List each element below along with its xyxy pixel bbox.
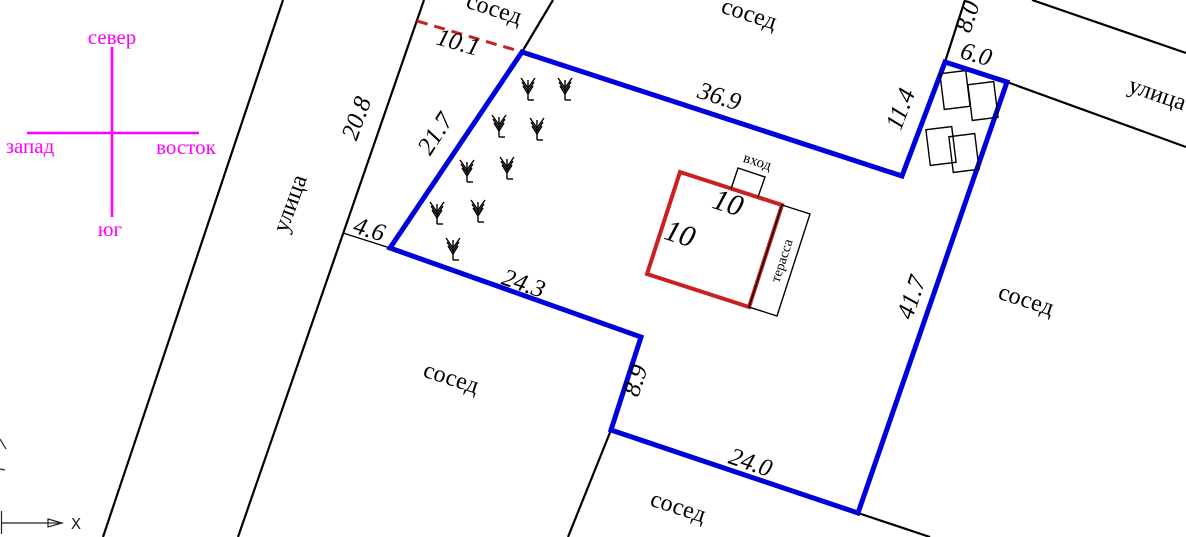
tree-icon	[471, 200, 485, 222]
neighbor-top-label: сосед	[718, 0, 780, 35]
street-lines	[103, 0, 1186, 537]
compass-south-label: юг	[98, 217, 123, 241]
trees	[430, 78, 572, 260]
dim-edge-step: 8.9	[618, 361, 653, 400]
neighbor-south-label: сосед	[647, 486, 709, 528]
compass-east-label: восток	[156, 135, 217, 159]
street-right-north-line	[1032, 0, 1186, 53]
neighbor-divider-top-line	[522, 0, 553, 52]
dim-street-frontage: 20.8	[337, 93, 378, 144]
dim-edge-s: 24.0	[725, 443, 776, 483]
ucs-axis-icon: X	[0, 439, 81, 534]
compass-north-label: север	[88, 25, 137, 49]
tree-icon	[430, 202, 444, 224]
dim-edge-ne: 11.4	[881, 85, 921, 134]
street-left-label: улица	[268, 171, 313, 236]
ucs-y-tick-small	[0, 469, 5, 470]
dim-edge-sw: 24.3	[498, 264, 548, 304]
neighbor-boundary-southwest-line	[568, 430, 611, 537]
dim-dashed-gap: 10.1	[433, 24, 482, 62]
tree-icon	[460, 160, 474, 182]
street-left-west-line	[103, 0, 283, 537]
tree-icon	[446, 238, 460, 260]
street-right-label: улица	[1125, 72, 1186, 116]
neighbor-boundary-southeast-line	[858, 513, 930, 537]
tree-icon	[500, 157, 514, 179]
street-left-east-line	[238, 0, 424, 537]
neighbor-east-label: сосед	[995, 279, 1057, 321]
house-width-label: 10	[709, 183, 748, 224]
tree-icon	[492, 115, 506, 137]
dim-connector-w: 4.6	[350, 212, 388, 247]
tree-icon	[530, 118, 544, 140]
area-labels: сосед сосед сосед сосед сосед улица улиц…	[268, 0, 1186, 528]
compass-rose: север юг запад восток	[6, 25, 217, 241]
house-group: 10 10 вход терасса	[647, 150, 810, 316]
site-plan-canvas: 10 10 вход терасса 10.1 20.8 21.7 4.6 24…	[0, 0, 1186, 537]
terrace-label: терасса	[769, 237, 797, 285]
neighbor-west-label: сосед	[420, 357, 482, 399]
tree-icon	[521, 78, 535, 100]
ucs-y-tick-diagonal	[0, 439, 6, 449]
tree-icon	[558, 78, 572, 100]
neighbor-top-left-label: сосед	[463, 0, 525, 30]
shed-rect	[940, 71, 970, 110]
ucs-x-label: X	[71, 515, 81, 533]
compass-west-label: запад	[6, 134, 55, 158]
